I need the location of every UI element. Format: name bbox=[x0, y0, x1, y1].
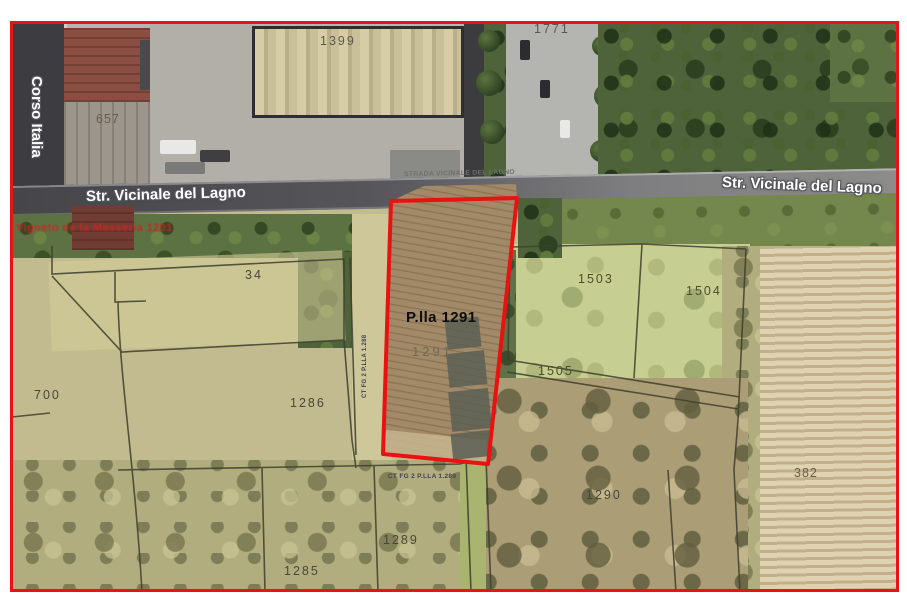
parcel-1290-area bbox=[478, 378, 748, 591]
vehicle bbox=[520, 40, 530, 60]
red-annotation-text: Vigneto de la Masseria 1291 bbox=[16, 222, 173, 234]
hedge bbox=[518, 198, 562, 258]
highlighted-parcel-label: P.lla 1291 bbox=[406, 309, 476, 326]
vehicle bbox=[165, 162, 205, 174]
vehicle bbox=[200, 150, 230, 162]
tree bbox=[480, 120, 504, 144]
ct-reference-vertical: CT FG 2 P.LLA 1.288 bbox=[362, 335, 368, 398]
parcel-number-1291: 1291 bbox=[412, 344, 453, 359]
tree bbox=[478, 30, 500, 52]
ct-reference-bottom: CT FG 2 P.LLA 1.289 bbox=[388, 473, 456, 480]
lane-strip bbox=[352, 214, 392, 460]
warehouse-roof bbox=[252, 26, 464, 118]
parcel-34-area bbox=[48, 250, 345, 351]
vehicle bbox=[560, 120, 570, 138]
vehicle bbox=[540, 80, 550, 98]
satellite-map bbox=[12, 22, 898, 591]
vehicle bbox=[160, 140, 196, 154]
vegetation-block bbox=[830, 22, 898, 102]
field-path bbox=[460, 458, 486, 591]
building-roof bbox=[64, 102, 150, 188]
tree bbox=[476, 70, 502, 96]
cadastral-satellite-map-page: Corso Italia Str. Vicinale del Lagno STR… bbox=[0, 0, 907, 611]
plowed-field-382 bbox=[760, 246, 898, 591]
street-label-corso-italia: Corso Italia bbox=[28, 76, 45, 180]
building-roof bbox=[64, 28, 152, 102]
